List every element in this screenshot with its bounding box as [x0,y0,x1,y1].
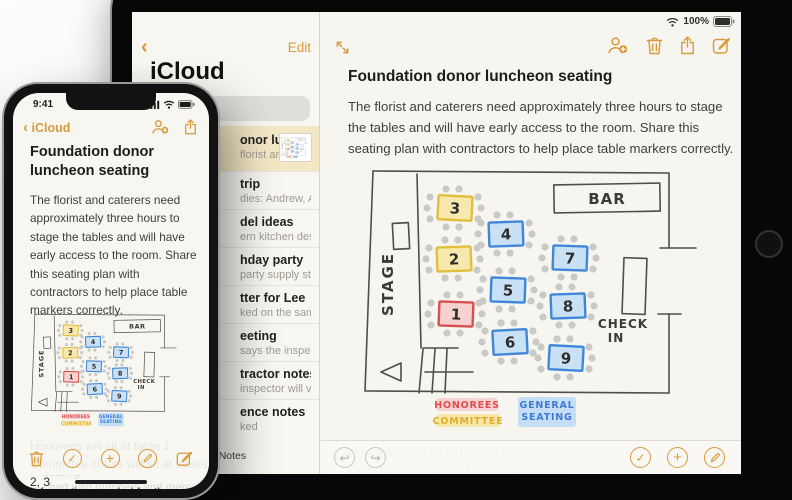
bar-label: BAR [588,190,626,208]
svg-text:9: 9 [560,349,571,368]
note-subtitle: ked [240,421,311,433]
table-1: 1 [286,147,291,151]
bar-label: BAR [129,323,145,331]
iphone-screen: 9:41 [13,93,209,489]
svg-text:HONOREES: HONOREES [434,400,500,411]
compose-icon[interactable] [176,450,193,467]
legend-committee: COMMITTEE [61,421,92,427]
note-pane: Foundation donor luncheon seating The fl… [321,12,741,474]
table-1: 1 [57,367,84,387]
svg-text:1: 1 [450,305,461,323]
checkin-label-2: IN [608,331,625,345]
table-8: 8 [536,283,597,328]
edit-button[interactable]: Edit [288,40,311,55]
note-title: ence notes [240,405,311,419]
checkin-label-2: IN [138,385,145,391]
wifi-icon [163,100,175,109]
svg-text:6: 6 [504,333,515,352]
legend-committee: COMMITTEE [286,157,292,159]
table-6: 6 [478,319,539,364]
note-page-title: Foundation donor luncheon seating [30,143,200,181]
table-5: 5 [290,145,295,149]
back-chevron-icon[interactable]: ‹ [141,38,148,56]
note-title: tter for Lee [240,291,311,305]
note-body: The florist and caterers need approximat… [30,191,200,320]
svg-text:8: 8 [562,297,573,315]
checkin-label-1: CHECK [133,379,155,385]
table-5: 5 [80,356,107,376]
legend-committee: COMMITTEE [433,414,504,427]
svg-text:5: 5 [502,281,513,299]
iphone-device: 9:41 [4,84,218,498]
svg-text:GENERAL: GENERAL [99,414,123,419]
collaborate-icon[interactable] [607,36,629,55]
share-icon[interactable] [184,119,197,135]
note-body: The florist and caterers need approximat… [348,96,734,159]
svg-text:5: 5 [92,363,97,371]
seating-chart-drawing[interactable]: STAGE BAR CHECK IN 1 [27,309,195,428]
table-8: 8 [106,363,133,383]
stage-label: STAGE [379,252,397,316]
home-indicator[interactable] [75,480,147,485]
legend-general-seating: GENERAL SEATING [293,156,298,159]
table-3: 3 [286,139,291,143]
note-title: hday party [240,253,311,267]
svg-text:COMMITTEE: COMMITTEE [61,421,92,426]
note-title: del ideas [240,215,311,229]
note-subtitle: party supply store... [240,269,311,281]
ipad-home-button[interactable] [755,230,783,258]
folder-title: iCloud [150,58,225,86]
svg-text:GENERAL: GENERAL [519,400,574,411]
note-subtitle: ked on the same tea... [240,307,311,319]
note-page-title: Foundation donor luncheon seating [348,68,612,86]
ipad-note-toolbar: ↩ ↪ ✓ + [321,440,741,474]
table-2: 2 [285,143,290,147]
table-4: 4 [474,211,535,256]
back-chevron-icon: ‹ [23,119,28,136]
svg-text:SEATING: SEATING [521,412,572,423]
collaborate-icon[interactable] [151,119,170,135]
table-7: 7 [295,143,300,147]
note-title: eeting [240,329,311,343]
table-6: 6 [290,149,295,153]
svg-text:3: 3 [68,327,73,335]
bar-label: BAR [299,139,302,141]
svg-text:SEATING: SEATING [100,419,123,424]
table-7: 7 [107,342,134,362]
table-1: 1 [424,291,485,336]
table-3: 3 [57,321,84,341]
note-title: trip [240,177,311,191]
add-icon[interactable]: + [101,449,120,468]
svg-text:8: 8 [118,370,123,378]
table-4: 4 [290,141,295,145]
markup-pen-icon[interactable] [704,447,725,468]
table-8: 8 [295,147,300,151]
table-4: 4 [79,332,106,352]
note-title: tractor notes [240,367,311,381]
compose-icon[interactable] [712,36,731,55]
add-icon[interactable]: + [667,447,688,468]
svg-text:COMMITTEE: COMMITTEE [433,416,504,427]
battery-icon [178,100,195,109]
checklist-icon[interactable]: ✓ [630,447,651,468]
checklist-icon[interactable]: ✓ [63,449,82,468]
table-9: 9 [534,335,595,380]
svg-text:1: 1 [69,373,74,381]
stage-label: STAGE [282,144,284,149]
legend-general-seating: GENERAL SEATING [518,397,576,427]
svg-text:7: 7 [119,349,124,357]
scene: 9:41 AM Wed Sep 12 100% [0,0,792,500]
legend-general-seating: GENERAL SEATING [98,413,123,426]
table-5: 5 [476,267,537,312]
trash-icon[interactable] [646,36,663,55]
expand-icon[interactable] [335,40,350,55]
seating-chart-drawing[interactable]: STAGE BAR CHECK IN 1 [355,158,739,432]
note-subtitle: says the inspector... [240,345,311,357]
legend-honorees: HONOREES [434,398,500,411]
svg-text:9: 9 [117,392,122,400]
back-to-icloud[interactable]: ‹ iCloud [23,119,70,137]
svg-text:4: 4 [91,338,96,346]
redo-icon[interactable]: ↪ [365,447,386,468]
checkin-label-1: CHECK [300,149,304,151]
notch [66,93,156,110]
svg-text:4: 4 [500,225,511,243]
svg-text:7: 7 [564,249,575,267]
note-subtitle: inspector will visit ne... [240,383,311,395]
iphone-note-toolbar: ✓ + [13,441,209,475]
svg-text:3: 3 [449,199,460,218]
svg-text:2: 2 [448,250,459,268]
svg-text:6: 6 [92,385,97,393]
checkin-label-1: CHECK [598,317,648,331]
table-3: 3 [423,185,484,230]
legend-honorees: HONOREES [62,414,91,420]
table-6: 6 [81,379,108,399]
markup-pen-icon[interactable] [138,449,157,468]
stage-label: STAGE [38,350,46,378]
note-subtitle: ern kitchen design in... [240,231,311,243]
table-7: 7 [538,235,599,280]
iphone-status-time: 9:41 [33,99,53,110]
undo-icon[interactable]: ↩ [334,447,355,468]
ipad-screen: 9:41 AM Wed Sep 12 100% [132,12,741,474]
svg-text:2: 2 [68,349,73,357]
share-icon[interactable] [680,36,695,55]
table-9: 9 [105,386,132,406]
table-2: 2 [56,343,83,363]
note-subtitle: dies: Andrew, Aaron... [240,193,311,205]
svg-text:HONOREES: HONOREES [62,414,91,419]
trash-icon[interactable] [29,450,44,467]
table-9: 9 [294,151,299,155]
note-thumbnail: STAGE BAR CHECK IN 1 [279,133,312,162]
table-2: 2 [422,236,483,281]
